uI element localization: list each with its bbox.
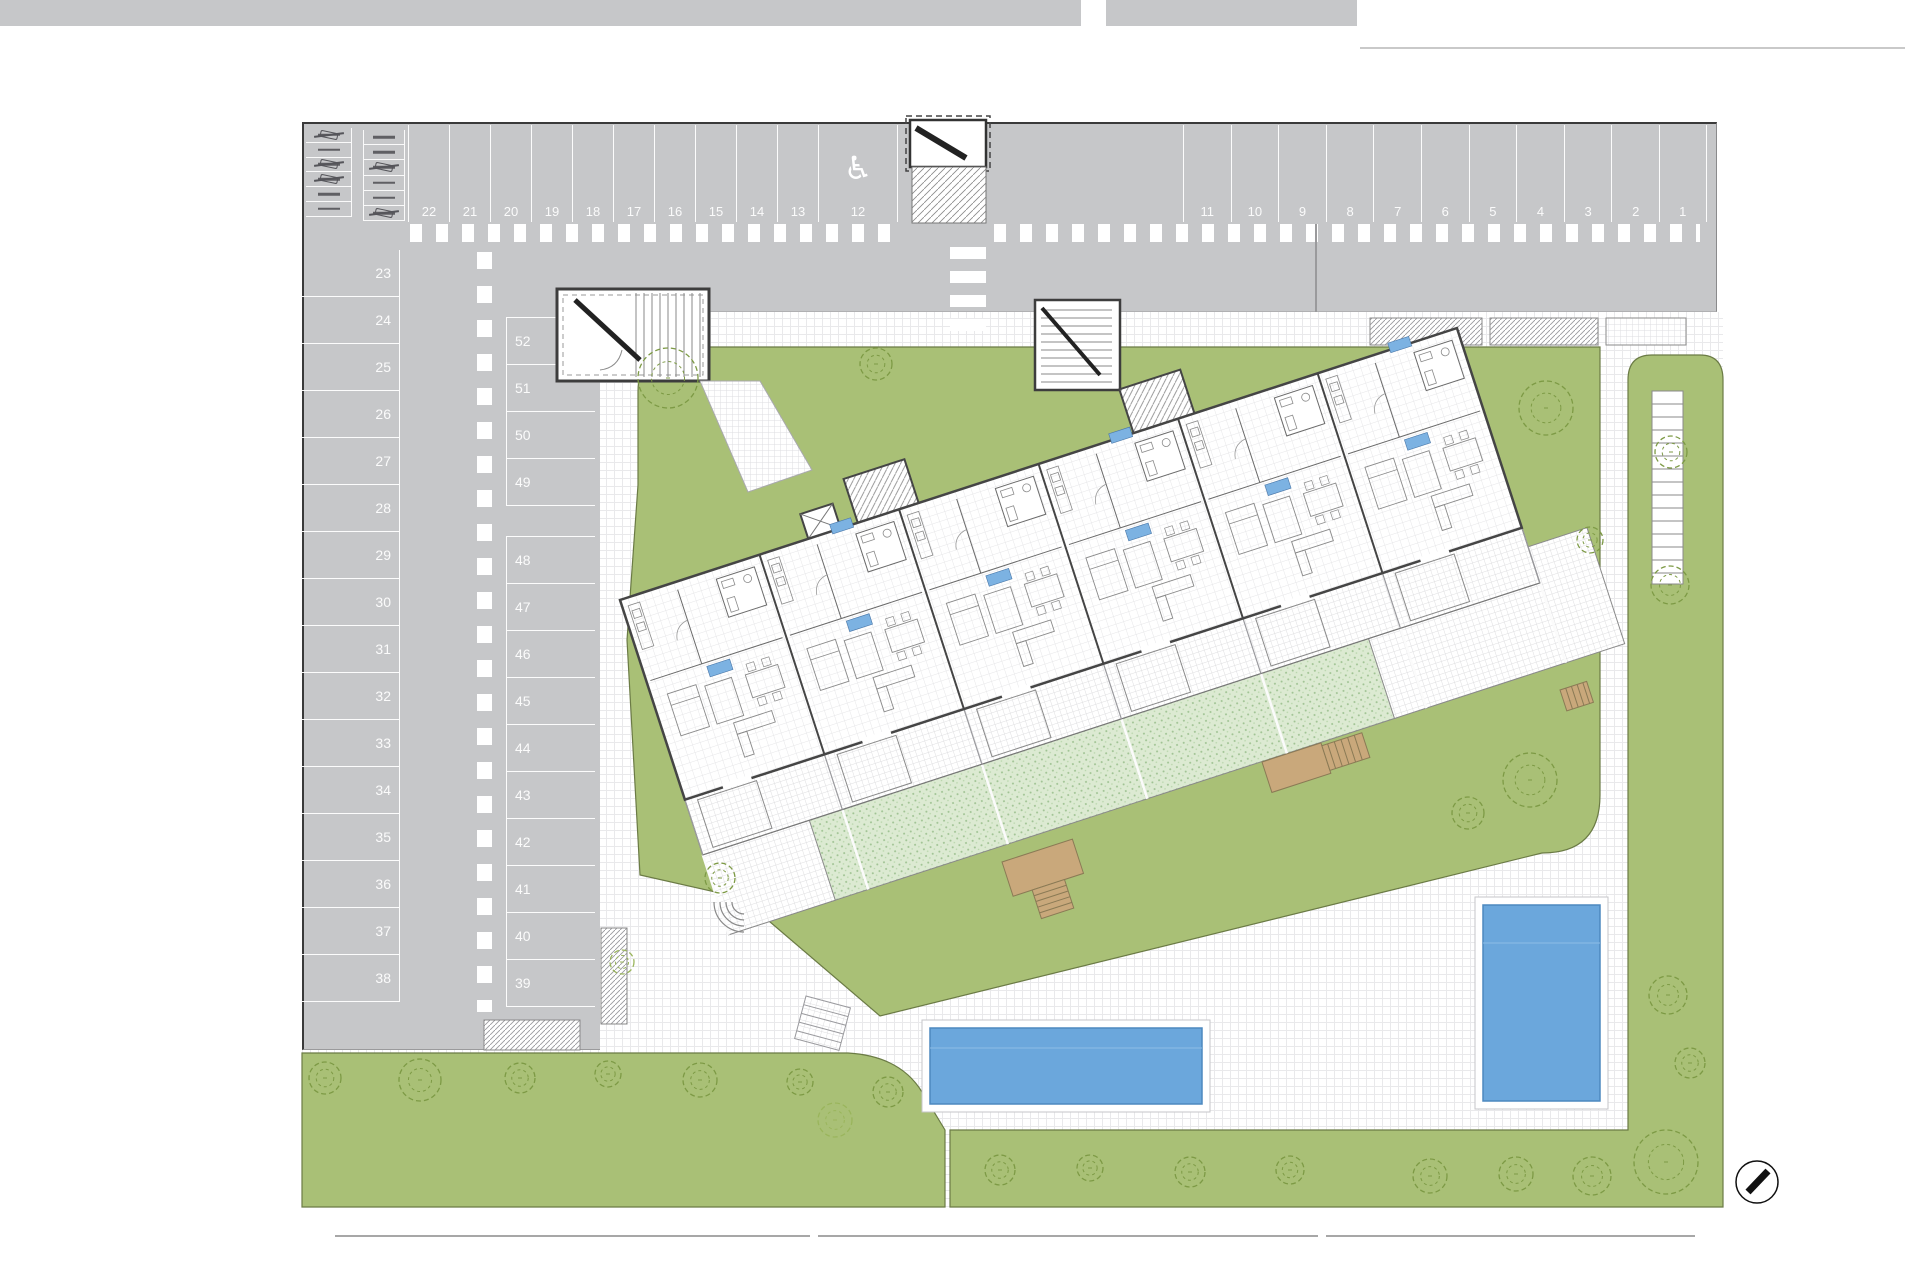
north-arrow-icon <box>1736 1161 1778 1203</box>
parking-space-label: 51 <box>515 380 531 396</box>
parking-column-middle-lower: 48474645444342414039 <box>506 536 595 1007</box>
parking-space-44: 44 <box>507 725 595 772</box>
parking-space-label: 41 <box>515 881 531 897</box>
parking-space-8: 8 <box>1326 125 1374 222</box>
moto-space <box>364 206 404 221</box>
parking-space-label: 33 <box>375 735 391 751</box>
parking-space-label: 34 <box>375 782 391 798</box>
parking-space-43: 43 <box>507 772 595 819</box>
parking-space-11: 11 <box>1183 125 1231 222</box>
parking-space-26: 26 <box>302 391 399 438</box>
motorcycle-icon <box>319 159 338 170</box>
parking-space-34: 34 <box>302 767 399 814</box>
parking-space-3: 3 <box>1564 125 1612 222</box>
parking-space-label: 44 <box>515 740 531 756</box>
parking-space-label: 30 <box>375 594 391 610</box>
parking-space-label: 25 <box>375 359 391 375</box>
parking-space-28: 28 <box>302 485 399 532</box>
street-strip-top <box>0 0 1357 26</box>
parking-space-2: 2 <box>1611 125 1659 222</box>
parking-space-label: 40 <box>515 928 531 944</box>
parking-space-31: 31 <box>302 626 399 673</box>
parking-space-38: 38 <box>302 955 399 1002</box>
crosswalk-top-left <box>410 224 902 242</box>
parking-space-label: 46 <box>515 646 531 662</box>
parking-space-label: 50 <box>515 427 531 443</box>
parking-space-39: 39 <box>507 960 595 1007</box>
parking-space-49: 49 <box>507 459 595 506</box>
parking-space-label: 43 <box>515 787 531 803</box>
moto-space <box>306 128 351 143</box>
stall-mark-icon <box>318 148 340 151</box>
moto-space <box>364 130 404 145</box>
parking-space-label: 7 <box>1374 204 1421 219</box>
stall-mark-icon <box>373 181 395 184</box>
crosswalk-top-right <box>994 224 1700 242</box>
parking-space-label: 37 <box>375 923 391 939</box>
stall-mark-icon <box>318 208 340 211</box>
lane-divider-line <box>1315 224 1317 312</box>
parking-space-label: 47 <box>515 599 531 615</box>
parking-space-48: 48 <box>507 537 595 584</box>
moto-parking-column-a <box>306 128 352 217</box>
parking-space-6: 6 <box>1421 125 1469 222</box>
moto-space <box>306 143 351 158</box>
parking-column-left: 23242526272829303132333435363738 <box>302 250 400 1002</box>
motorcycle-icon <box>319 130 338 141</box>
moto-space <box>364 160 404 175</box>
parking-space-label: 11 <box>1184 204 1231 219</box>
ramp-label: PTE 6% <box>512 1030 544 1039</box>
parking-space-52: 52 <box>507 318 595 365</box>
parking-space-27: 27 <box>302 438 399 485</box>
motorcycle-icon <box>319 174 338 185</box>
parking-space-label: 10 <box>1232 204 1279 219</box>
parking-space-label: 4 <box>1517 204 1564 219</box>
parking-space-1: 1 <box>1659 125 1707 222</box>
moto-space <box>306 202 351 217</box>
ramp-label: PTE 6% <box>608 956 617 988</box>
parking-column-middle-upper: 52515049 <box>506 317 595 506</box>
parking-space-label: 45 <box>515 693 531 709</box>
moto-space <box>306 172 351 187</box>
parking-space-46: 46 <box>507 631 595 678</box>
parking-space-label: 29 <box>375 547 391 563</box>
moto-parking-column-b <box>363 130 405 221</box>
parking-space-30: 30 <box>302 579 399 626</box>
parking-space-41: 41 <box>507 866 595 913</box>
parking-space-9: 9 <box>1278 125 1326 222</box>
moto-space <box>306 158 351 173</box>
parking-space-label: 38 <box>375 970 391 986</box>
parking-space-label: 36 <box>375 876 391 892</box>
parking-space-label: 5 <box>1470 204 1517 219</box>
parking-space-50: 50 <box>507 412 595 459</box>
stall-mark-icon <box>318 193 340 196</box>
parking-space-40: 40 <box>507 913 595 960</box>
parking-space-35: 35 <box>302 814 399 861</box>
parking-space-label: 3 <box>1565 204 1612 219</box>
parking-space-label: 35 <box>375 829 391 845</box>
parking-space-51: 51 <box>507 365 595 412</box>
parking-space-23: 23 <box>302 250 399 297</box>
parking-space-label: 28 <box>375 500 391 516</box>
ramp-label: PTE 6% <box>1398 327 1430 336</box>
parking-row-top-right: 1110987654321 <box>0 125 1920 222</box>
parking-space-label: 26 <box>375 406 391 422</box>
crosswalk-vertical <box>950 247 986 341</box>
parking-space-7: 7 <box>1373 125 1421 222</box>
parking-space-29: 29 <box>302 532 399 579</box>
parking-space-42: 42 <box>507 819 595 866</box>
parking-space-label: 23 <box>375 265 391 281</box>
parking-space-label: 49 <box>515 474 531 490</box>
parking-space-5: 5 <box>1469 125 1517 222</box>
parking-space-label: 32 <box>375 688 391 704</box>
parking-space-36: 36 <box>302 861 399 908</box>
parking-space-label: 27 <box>375 453 391 469</box>
parking-space-label: 6 <box>1422 204 1469 219</box>
parking-space-label: 39 <box>515 975 531 991</box>
parking-space-37: 37 <box>302 908 399 955</box>
parking-space-label: 8 <box>1327 204 1374 219</box>
parking-space-24: 24 <box>302 297 399 344</box>
parking-space-label: 31 <box>375 641 391 657</box>
stall-mark-icon <box>373 151 395 154</box>
parking-space-label: 1 <box>1660 204 1706 219</box>
ramp-label: PTE 6% <box>1518 327 1550 336</box>
parking-space-label: 2 <box>1612 204 1659 219</box>
parking-space-32: 32 <box>302 673 399 720</box>
parking-space-label: 9 <box>1279 204 1326 219</box>
moto-space <box>306 187 351 202</box>
street-strip-gap <box>1081 0 1106 26</box>
stall-mark-icon <box>373 197 395 200</box>
parking-space-33: 33 <box>302 720 399 767</box>
parking-space-label: 24 <box>375 312 391 328</box>
parking-space-label: 42 <box>515 834 531 850</box>
aisle-center-dashed-line <box>477 252 492 1012</box>
parking-space-10: 10 <box>1231 125 1279 222</box>
moto-space <box>364 191 404 206</box>
stall-mark-icon <box>373 136 395 139</box>
site-plan-canvas: 2221201918171615141312♿ 1110987654321 23… <box>0 0 1920 1280</box>
parking-space-label: 52 <box>515 333 531 349</box>
moto-space <box>364 145 404 160</box>
motorcycle-icon <box>374 162 393 173</box>
parking-space-45: 45 <box>507 678 595 725</box>
parking-space-label: 48 <box>515 552 531 568</box>
parking-space-47: 47 <box>507 584 595 631</box>
moto-space <box>364 176 404 191</box>
motorcycle-icon <box>374 208 393 219</box>
parking-space-25: 25 <box>302 344 399 391</box>
parking-space-4: 4 <box>1516 125 1564 222</box>
